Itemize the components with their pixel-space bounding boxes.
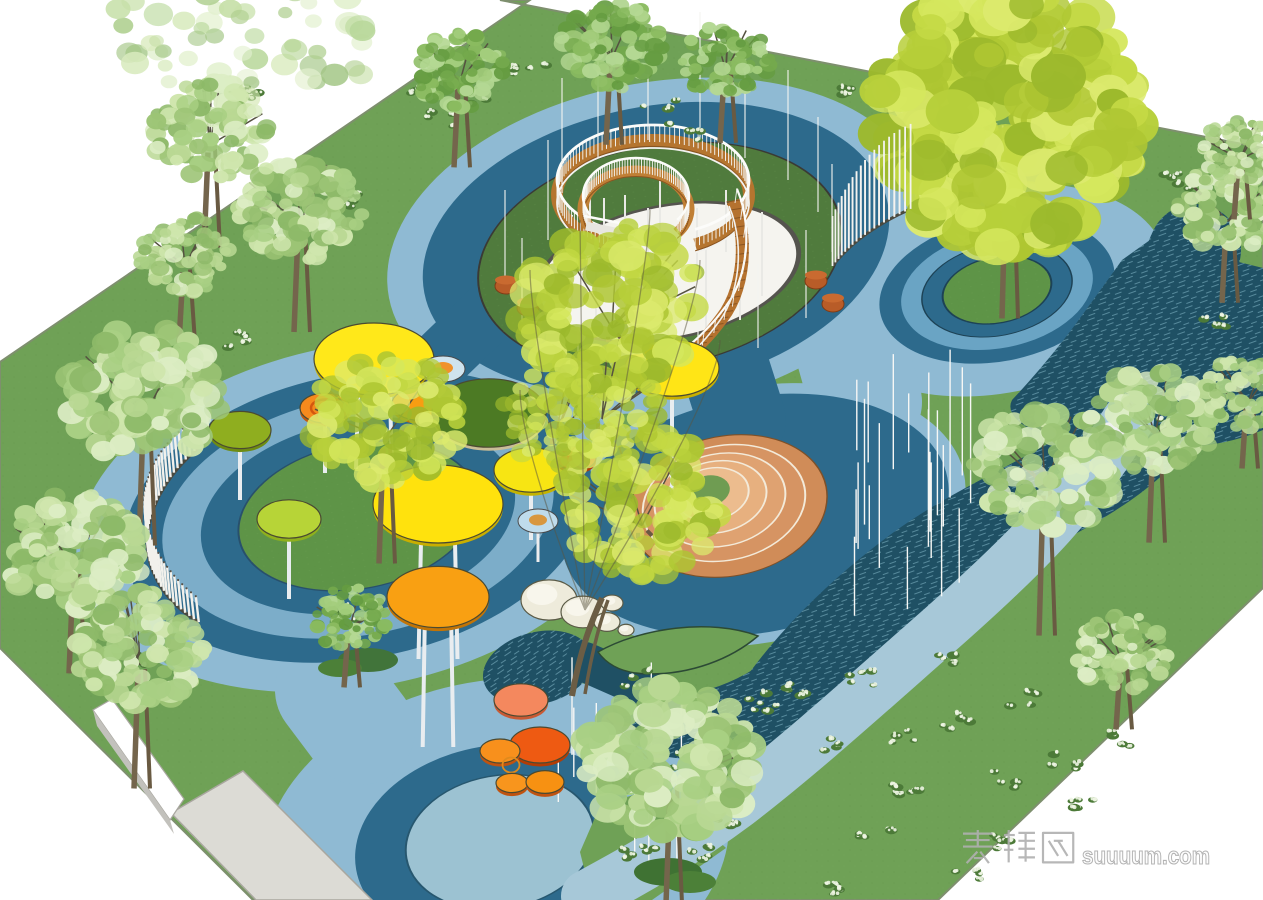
svg-text:suuuum.com: suuuum.com (1082, 843, 1210, 870)
